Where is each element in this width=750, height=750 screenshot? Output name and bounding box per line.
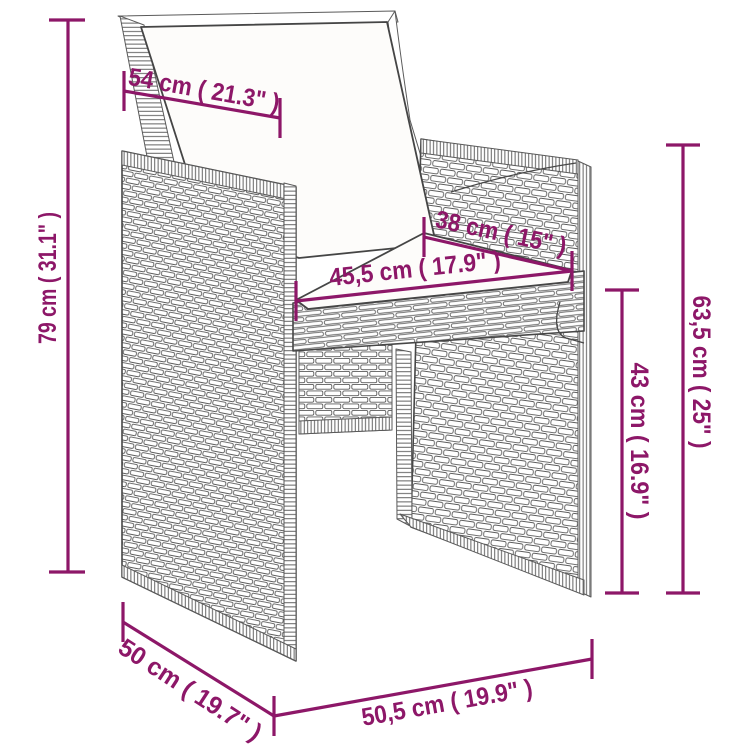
diagram-stage: 54 cm ( 21.3" ) 79 cm ( 31.1" ) 38 cm ( … <box>0 0 750 750</box>
right-armrest-front-edge-roll <box>396 349 412 527</box>
dimension-overall-height: 79 cm ( 31.1" ) <box>34 20 85 572</box>
right-armrest-panel <box>411 139 584 592</box>
dimension-label-overall-width: 50,5 cm ( 19.9" ) <box>359 674 534 732</box>
chair-dimension-diagram: 54 cm ( 21.3" ) 79 cm ( 31.1" ) 38 cm ( … <box>0 0 750 750</box>
dimension-armrest-height: 63,5 cm ( 25" ) <box>666 145 715 593</box>
dimension-overall-width: 50,5 cm ( 19.9" ) <box>274 639 592 736</box>
dimension-seat-height: 43 cm ( 16.9" ) <box>605 290 653 593</box>
dimension-label-armrest-height: 63,5 cm ( 25" ) <box>687 296 715 449</box>
dimension-label-seat-height: 43 cm ( 16.9" ) <box>625 363 653 520</box>
left-armrest-back-edge-roll <box>284 183 296 661</box>
chair-illustration <box>118 11 591 661</box>
dimension-label-overall-height: 79 cm ( 31.1" ) <box>34 212 62 344</box>
dimension-label-overall-depth: 50 cm ( 19.7" ) <box>113 633 267 746</box>
right-armrest-outer-edge <box>578 161 591 597</box>
